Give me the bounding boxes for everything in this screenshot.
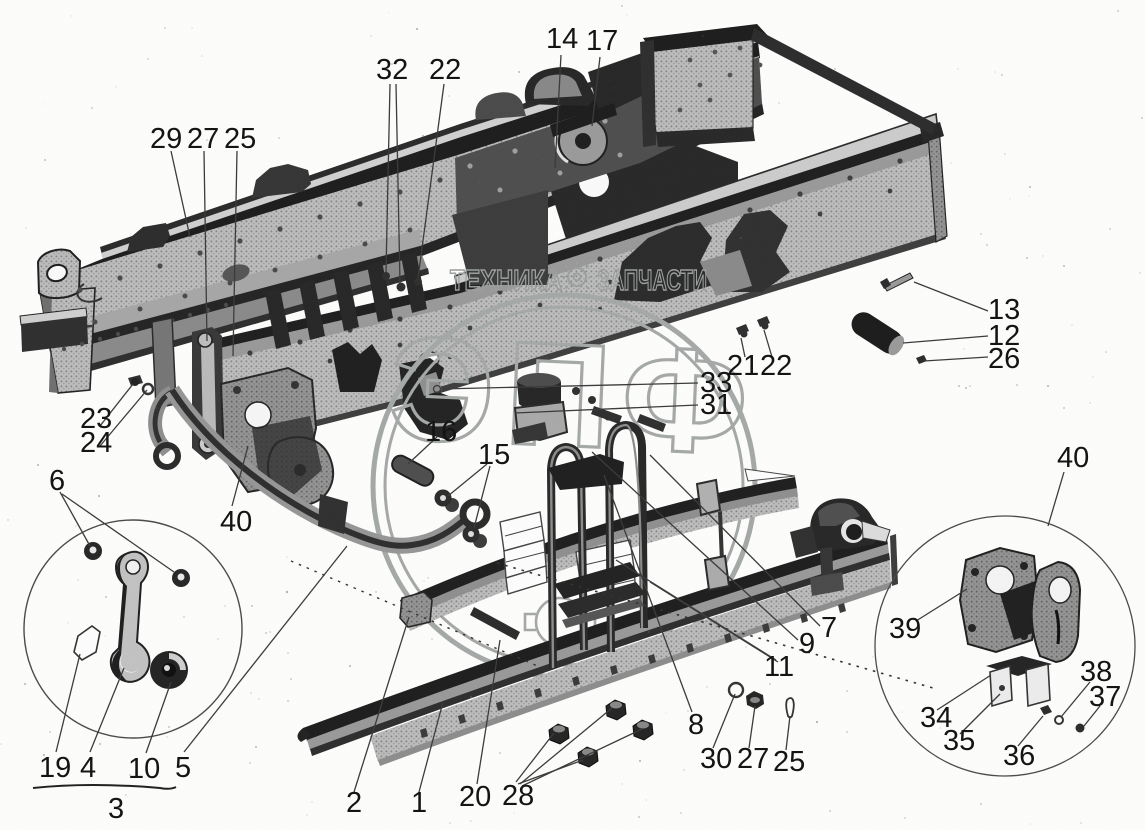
svg-text:10: 10 — [128, 753, 160, 785]
svg-text:4: 4 — [80, 752, 96, 784]
svg-text:15: 15 — [478, 439, 510, 471]
svg-text:25: 25 — [773, 746, 805, 778]
svg-text:5: 5 — [175, 752, 191, 784]
svg-text:32: 32 — [376, 54, 408, 86]
svg-text:26: 26 — [988, 343, 1020, 375]
svg-text:21: 21 — [727, 350, 759, 382]
svg-text:22: 22 — [760, 350, 792, 382]
svg-text:ТЕХНИКА: ТЕХНИКА — [450, 265, 562, 297]
svg-text:25: 25 — [224, 123, 256, 155]
svg-text:39: 39 — [889, 613, 921, 645]
svg-text:28: 28 — [502, 780, 534, 812]
svg-text:8: 8 — [688, 709, 704, 741]
svg-text:35: 35 — [943, 725, 975, 757]
svg-text:1: 1 — [411, 787, 427, 819]
svg-text:3: 3 — [108, 793, 124, 825]
svg-text:40: 40 — [1057, 442, 1089, 474]
svg-text:11: 11 — [764, 651, 794, 683]
svg-text:27: 27 — [187, 123, 219, 155]
svg-text:19: 19 — [39, 752, 71, 784]
svg-text:30: 30 — [700, 743, 732, 775]
svg-text:20: 20 — [459, 781, 491, 813]
svg-text:37: 37 — [1089, 681, 1121, 713]
svg-text:36: 36 — [1003, 740, 1035, 772]
svg-text:7: 7 — [821, 612, 837, 644]
svg-text:22: 22 — [429, 54, 461, 86]
svg-text:40: 40 — [220, 506, 252, 538]
svg-text:6: 6 — [49, 465, 65, 497]
svg-text:9: 9 — [799, 628, 815, 660]
svg-text:29: 29 — [150, 123, 182, 155]
svg-text:16: 16 — [425, 416, 457, 448]
svg-text:24: 24 — [80, 427, 112, 459]
svg-text:14: 14 — [546, 23, 578, 55]
svg-text:27: 27 — [737, 743, 769, 775]
svg-text:17: 17 — [586, 25, 618, 57]
svg-text:2: 2 — [346, 787, 362, 819]
svg-text:31: 31 — [700, 389, 732, 421]
svg-text:ЗАПЧАСТИ: ЗАПЧАСТИ — [597, 265, 707, 297]
